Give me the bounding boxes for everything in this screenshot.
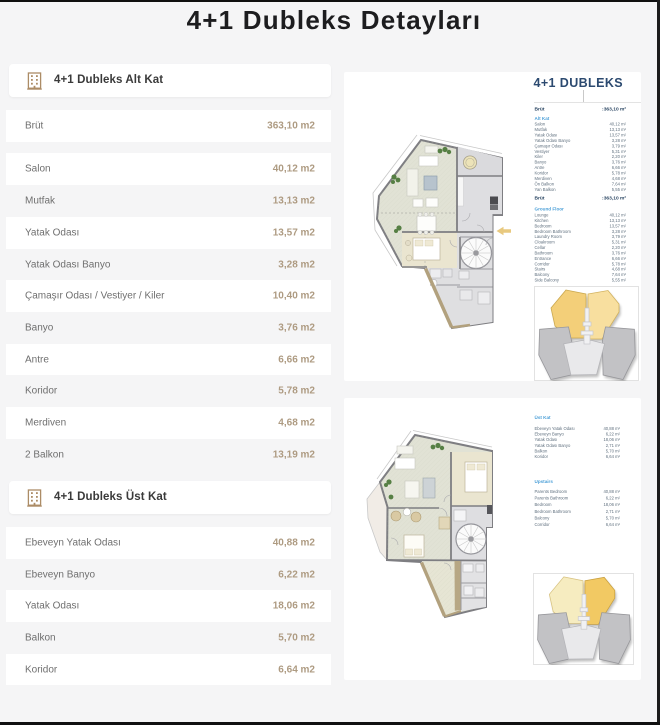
svg-text:5,70 m²: 5,70 m²	[606, 448, 621, 453]
svg-text:Corridor: Corridor	[535, 261, 551, 266]
svg-text:Corridor: Corridor	[535, 522, 551, 527]
svg-text:40,88 m²: 40,88 m²	[603, 489, 620, 494]
svg-text:Üst Kat: Üst Kat	[535, 414, 552, 420]
svg-text:40,12 m²: 40,12 m²	[609, 213, 626, 218]
svg-text:18,06 m²: 18,06 m²	[603, 437, 620, 442]
svg-text:3,79 m²: 3,79 m²	[612, 234, 627, 239]
svg-text:5,78 m²: 5,78 m²	[612, 171, 627, 176]
svg-text:Koridor: Koridor	[535, 454, 549, 459]
svg-text:2,71 m²: 2,71 m²	[606, 509, 621, 514]
svg-text:13,13 m²: 13,13 m²	[609, 127, 626, 132]
svg-text:5,55 m²: 5,55 m²	[612, 187, 627, 192]
svg-text:40,88 m²: 40,88 m²	[603, 426, 620, 431]
svg-text:6,64 m²: 6,64 m²	[606, 522, 621, 527]
svg-text:Upstairs: Upstairs	[535, 479, 554, 484]
svg-text:3,76 m²: 3,76 m²	[612, 250, 627, 255]
svg-text:Ön Balkon: Ön Balkon	[535, 181, 555, 186]
svg-text:5,31 m²: 5,31 m²	[612, 149, 627, 154]
svg-text:Koridor: Koridor	[535, 171, 549, 176]
svg-text:18,06 m²: 18,06 m²	[603, 502, 620, 507]
svg-text:Bedroom: Bedroom	[535, 502, 553, 507]
svg-text:Lounge: Lounge	[535, 213, 550, 218]
svg-text:13,13 m²: 13,13 m²	[609, 218, 626, 223]
svg-text:Balkon: Balkon	[535, 448, 548, 453]
svg-text:5,70 m²: 5,70 m²	[606, 515, 621, 520]
svg-text:Bedroom: Bedroom	[535, 223, 553, 228]
svg-text:6,66 m²: 6,66 m²	[612, 256, 627, 261]
svg-text:Ground Floor: Ground Floor	[535, 207, 565, 212]
svg-text:5,55 m²: 5,55 m²	[612, 278, 627, 283]
svg-text:Cellar: Cellar	[535, 245, 547, 250]
svg-text:Kitchen: Kitchen	[535, 218, 550, 223]
svg-text:Kiler: Kiler	[535, 154, 544, 159]
svg-text:7,64 m²: 7,64 m²	[612, 272, 627, 277]
svg-text:Antre: Antre	[535, 165, 546, 170]
svg-text:Stairs: Stairs	[535, 267, 546, 272]
svg-text:Balcony: Balcony	[535, 272, 551, 277]
svg-text:Side Balcony: Side Balcony	[535, 278, 560, 283]
svg-text:Yan Balkon: Yan Balkon	[535, 187, 557, 192]
svg-text:6,22 m²: 6,22 m²	[606, 496, 621, 501]
svg-text:40,12 m²: 40,12 m²	[609, 122, 626, 127]
svg-text:6,22 m²: 6,22 m²	[606, 432, 621, 437]
svg-text:Brüt: Brüt	[535, 107, 545, 113]
svg-text:Parents Bedroom: Parents Bedroom	[535, 489, 568, 494]
svg-text:Parents Bathroom: Parents Bathroom	[535, 496, 569, 501]
svg-text:Yatak Odası Banyo: Yatak Odası Banyo	[535, 138, 571, 143]
svg-text:4,68 m²: 4,68 m²	[612, 267, 627, 272]
svg-text:Vestiyer: Vestiyer	[535, 149, 551, 154]
svg-text:Ebeveyn Banyo: Ebeveyn Banyo	[535, 432, 565, 437]
svg-text:Salon: Salon	[535, 122, 546, 127]
svg-text:Banyo: Banyo	[535, 160, 548, 165]
svg-text:Laundry Room: Laundry Room	[535, 234, 563, 239]
svg-text:Bathroom: Bathroom	[535, 250, 554, 255]
svg-text:5,78 m²: 5,78 m²	[612, 261, 627, 266]
svg-text:Mutfak: Mutfak	[535, 127, 548, 132]
svg-text:Çamaşır Odası: Çamaşır Odası	[535, 143, 563, 148]
svg-text:Yatak Odası: Yatak Odası	[535, 132, 558, 137]
svg-text:6,64 m²: 6,64 m²	[606, 454, 621, 459]
svg-text:363,10 m²: 363,10 m²	[604, 107, 627, 113]
svg-text:Merdiven: Merdiven	[535, 176, 553, 181]
svg-text:3,28 m²: 3,28 m²	[612, 138, 627, 143]
svg-text:2,71 m²: 2,71 m²	[606, 443, 621, 448]
svg-text:363,10 m²: 363,10 m²	[604, 196, 627, 202]
svg-text:Yatak Odası Banyo: Yatak Odası Banyo	[535, 443, 571, 448]
svg-text:Balcony: Balcony	[535, 515, 551, 520]
svg-text:Entrance: Entrance	[535, 256, 552, 261]
svg-text:3,28 m²: 3,28 m²	[612, 229, 627, 234]
svg-text:2,20 m²: 2,20 m²	[612, 154, 627, 159]
svg-text:Cloakroom: Cloakroom	[535, 240, 556, 245]
svg-text:Bedroom Bathroom: Bedroom Bathroom	[535, 509, 572, 514]
svg-text:Bedroom Bathroom: Bedroom Bathroom	[535, 229, 572, 234]
svg-text:Ebeveyn Yatak Odası: Ebeveyn Yatak Odası	[535, 426, 575, 431]
svg-text:7,64 m²: 7,64 m²	[612, 181, 627, 186]
svg-text:3,79 m²: 3,79 m²	[612, 143, 627, 148]
svg-text:13,57 m²: 13,57 m²	[609, 223, 626, 228]
svg-text:5,31 m²: 5,31 m²	[612, 240, 627, 245]
svg-text:Yatak Odası: Yatak Odası	[535, 437, 558, 442]
svg-text:Alt Kat: Alt Kat	[535, 116, 550, 121]
svg-text:13,57 m²: 13,57 m²	[609, 132, 626, 137]
svg-text:6,66 m²: 6,66 m²	[612, 165, 627, 170]
svg-text:2,20 m²: 2,20 m²	[612, 245, 627, 250]
svg-text:4,68 m²: 4,68 m²	[612, 176, 627, 181]
svg-text:3,76 m²: 3,76 m²	[612, 160, 627, 165]
svg-text:Brüt: Brüt	[535, 196, 545, 202]
